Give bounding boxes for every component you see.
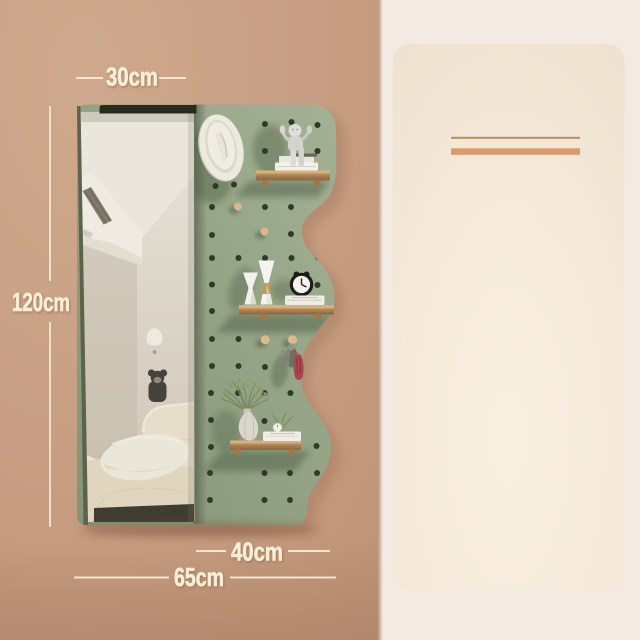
- svg-text:65cm: 65cm: [174, 562, 224, 592]
- svg-text:120cm: 120cm: [12, 287, 70, 317]
- svg-text:40cm: 40cm: [231, 537, 283, 567]
- svg-text:30cm: 30cm: [106, 62, 158, 92]
